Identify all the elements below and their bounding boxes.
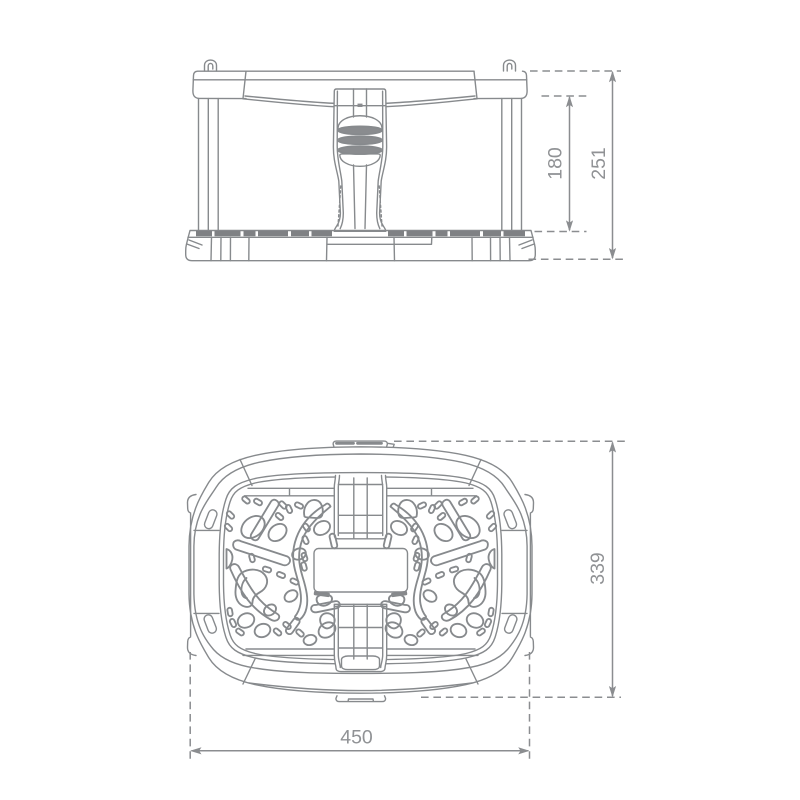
svg-text:251: 251: [588, 147, 610, 180]
svg-text:180: 180: [545, 147, 567, 180]
svg-text:339: 339: [587, 552, 609, 585]
svg-text:450: 450: [340, 727, 373, 749]
